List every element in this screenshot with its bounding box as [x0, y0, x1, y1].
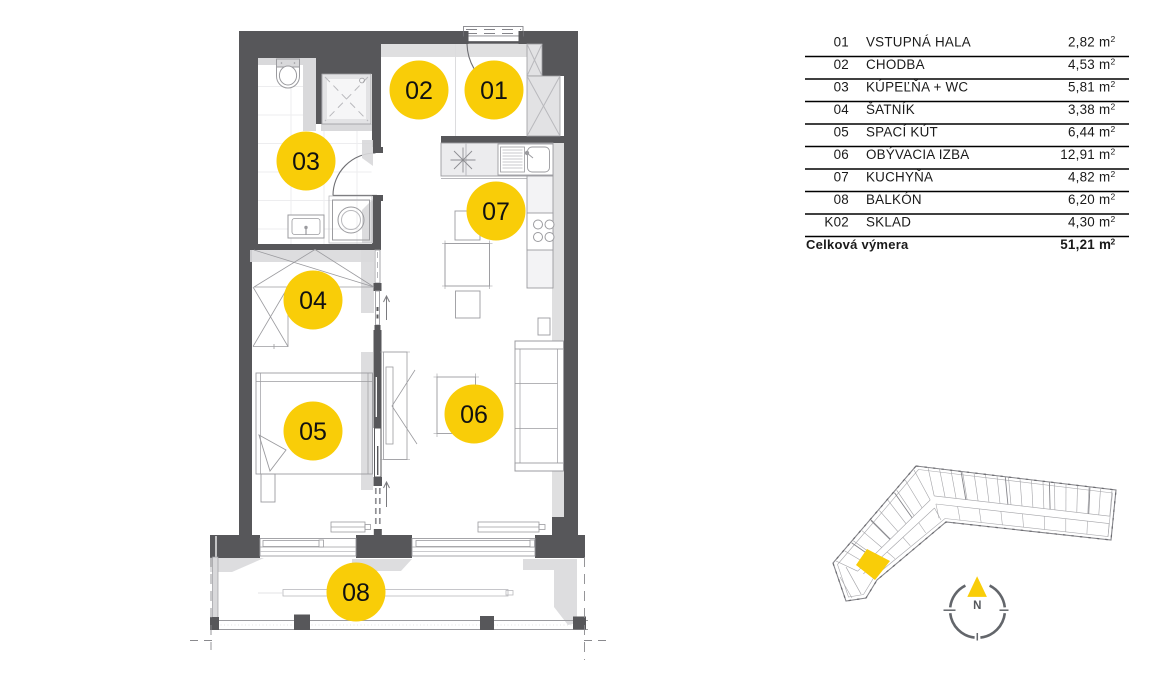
svg-text:ŠATNÍK: ŠATNÍK — [866, 102, 915, 117]
svg-text:51,21: 51,21 — [1060, 237, 1095, 252]
svg-text:06: 06 — [834, 147, 849, 162]
svg-text:12,91: 12,91 — [1060, 147, 1095, 162]
svg-text:03: 03 — [292, 148, 320, 176]
svg-text:4,82: 4,82 — [1068, 169, 1095, 184]
svg-text:VSTUPNÁ HALA: VSTUPNÁ HALA — [866, 34, 971, 49]
svg-text:01: 01 — [834, 34, 849, 49]
svg-text:3,38: 3,38 — [1068, 102, 1095, 117]
svg-text:6,20: 6,20 — [1068, 192, 1095, 207]
svg-text:05: 05 — [299, 418, 327, 446]
svg-text:2: 2 — [1111, 236, 1116, 246]
svg-text:07: 07 — [834, 169, 849, 184]
svg-text:4,30: 4,30 — [1068, 214, 1095, 229]
svg-text:KÚPEĽŇA + WC: KÚPEĽŇA + WC — [866, 79, 968, 94]
svg-text:2,82: 2,82 — [1068, 34, 1095, 49]
svg-text:5,81: 5,81 — [1068, 79, 1095, 94]
svg-text:K02: K02 — [824, 214, 849, 229]
svg-text:04: 04 — [299, 287, 327, 315]
svg-text:m: m — [1099, 57, 1110, 72]
svg-text:KUCHYŇA: KUCHYŇA — [866, 169, 933, 184]
svg-text:m: m — [1099, 34, 1110, 49]
svg-text:2: 2 — [1111, 214, 1116, 224]
svg-text:m: m — [1099, 147, 1110, 162]
svg-text:N: N — [973, 600, 981, 612]
svg-text:06: 06 — [460, 401, 488, 429]
svg-text:02: 02 — [405, 77, 433, 105]
svg-text:m: m — [1099, 79, 1110, 94]
svg-text:02: 02 — [834, 57, 849, 72]
svg-text:2: 2 — [1111, 169, 1116, 179]
svg-text:07: 07 — [482, 198, 510, 226]
svg-text:BALKÓN: BALKÓN — [866, 192, 922, 207]
svg-text:m: m — [1099, 214, 1110, 229]
svg-text:m: m — [1099, 169, 1110, 184]
svg-text:6,44: 6,44 — [1068, 124, 1095, 139]
svg-text:2: 2 — [1111, 124, 1116, 134]
svg-text:2: 2 — [1111, 79, 1116, 89]
svg-text:m: m — [1099, 237, 1111, 252]
svg-text:OBÝVACIA IZBA: OBÝVACIA IZBA — [866, 147, 969, 162]
svg-text:CHODBA: CHODBA — [866, 57, 925, 72]
svg-text:2: 2 — [1111, 34, 1116, 44]
svg-text:SPACÍ KÚT: SPACÍ KÚT — [866, 124, 938, 139]
svg-text:08: 08 — [342, 579, 370, 607]
svg-text:08: 08 — [834, 192, 849, 207]
svg-text:05: 05 — [834, 124, 849, 139]
svg-text:03: 03 — [834, 79, 849, 94]
svg-text:2: 2 — [1111, 56, 1116, 66]
svg-text:01: 01 — [480, 77, 508, 105]
svg-text:04: 04 — [834, 102, 850, 117]
svg-text:2: 2 — [1111, 146, 1116, 156]
svg-text:m: m — [1099, 124, 1110, 139]
svg-text:2: 2 — [1111, 101, 1116, 111]
svg-text:2: 2 — [1111, 191, 1116, 201]
svg-text:m: m — [1099, 102, 1110, 117]
svg-text:4,53: 4,53 — [1068, 57, 1095, 72]
svg-text:m: m — [1099, 192, 1110, 207]
svg-text:SKLAD: SKLAD — [866, 214, 911, 229]
svg-text:Celková výmera: Celková výmera — [806, 237, 909, 252]
